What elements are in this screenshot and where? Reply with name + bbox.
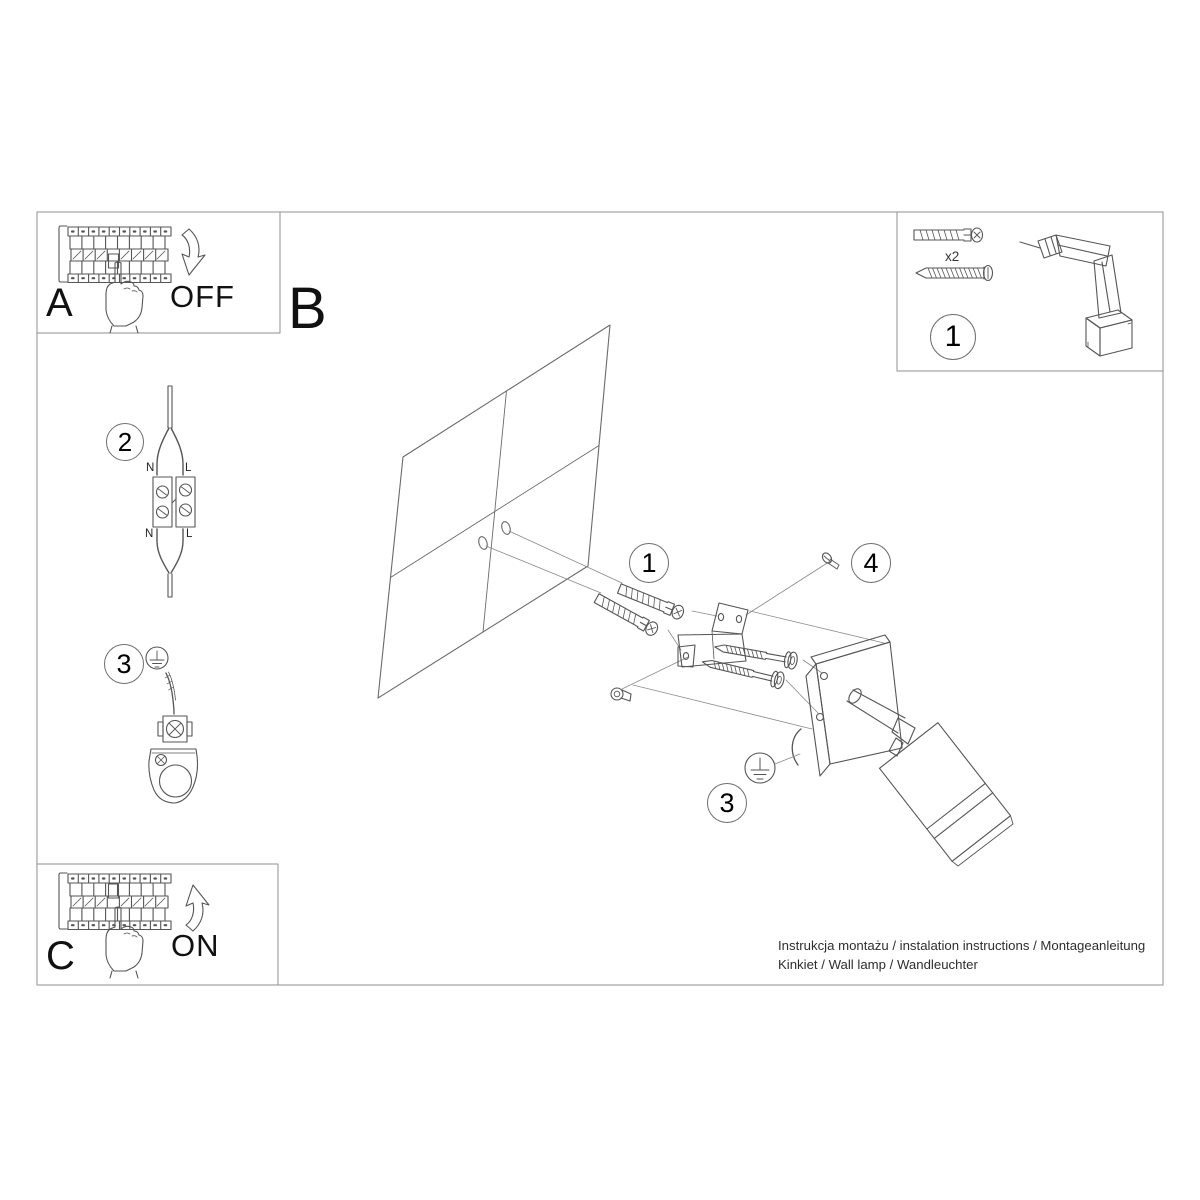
earth-wire <box>792 729 801 765</box>
earth-wire-marker: 3 <box>707 783 747 823</box>
off-arrow-icon <box>182 229 205 275</box>
parts-marker: 1 <box>930 314 976 360</box>
pointing-hand-icon <box>106 262 143 333</box>
lamp-head <box>880 723 1014 866</box>
drill-icon <box>1020 235 1132 356</box>
earth-symbol-icon <box>745 753 800 783</box>
footer-product-line: Kinkiet / Wall lamp / Wandleuchter <box>778 958 978 971</box>
adjust-screw-icon <box>821 551 839 569</box>
panel-a-box <box>37 212 280 333</box>
pointing-hand-icon <box>106 907 143 978</box>
wall-anchor-icon <box>593 582 685 637</box>
panel-b-label: B <box>288 280 327 338</box>
earth-symbol-icon <box>146 647 168 669</box>
small-bolt-icon <box>611 688 631 701</box>
instruction-sheet: A OFF B C ON x2 1 1 4 3 2 3 N L N L Inst… <box>0 0 1200 1200</box>
footer-title-line: Instrukcja montażu / instalation instruc… <box>778 939 1145 952</box>
terminal-block-diagram <box>153 386 195 597</box>
terminal-label-l-top: L <box>185 463 191 475</box>
adjust-screw-marker: 4 <box>851 543 891 583</box>
anchor-quantity: x2 <box>945 250 959 264</box>
terminal-label-n-top: N <box>146 463 154 475</box>
earth-step-marker: 3 <box>104 644 144 684</box>
terminal-label-l-bottom: L <box>186 529 192 541</box>
on-caption: ON <box>171 930 220 961</box>
screw-icon <box>916 266 993 281</box>
lamp-body <box>792 635 902 776</box>
line-art <box>0 0 1200 1200</box>
lamp-arm <box>846 687 915 756</box>
mounting-bracket <box>678 603 748 667</box>
main-frame <box>37 212 1163 985</box>
off-caption: OFF <box>170 281 235 312</box>
wall-panel <box>378 325 610 698</box>
panel-a-label: A <box>46 283 73 323</box>
anchors-marker: 1 <box>629 543 669 583</box>
wiring-step-marker: 2 <box>106 423 144 461</box>
on-arrow-icon <box>186 885 209 931</box>
terminal-label-n-bottom: N <box>145 529 153 541</box>
panel-c-label: C <box>46 936 75 976</box>
wall-anchor-icon <box>914 228 983 242</box>
earth-clamp-diagram <box>149 672 198 803</box>
